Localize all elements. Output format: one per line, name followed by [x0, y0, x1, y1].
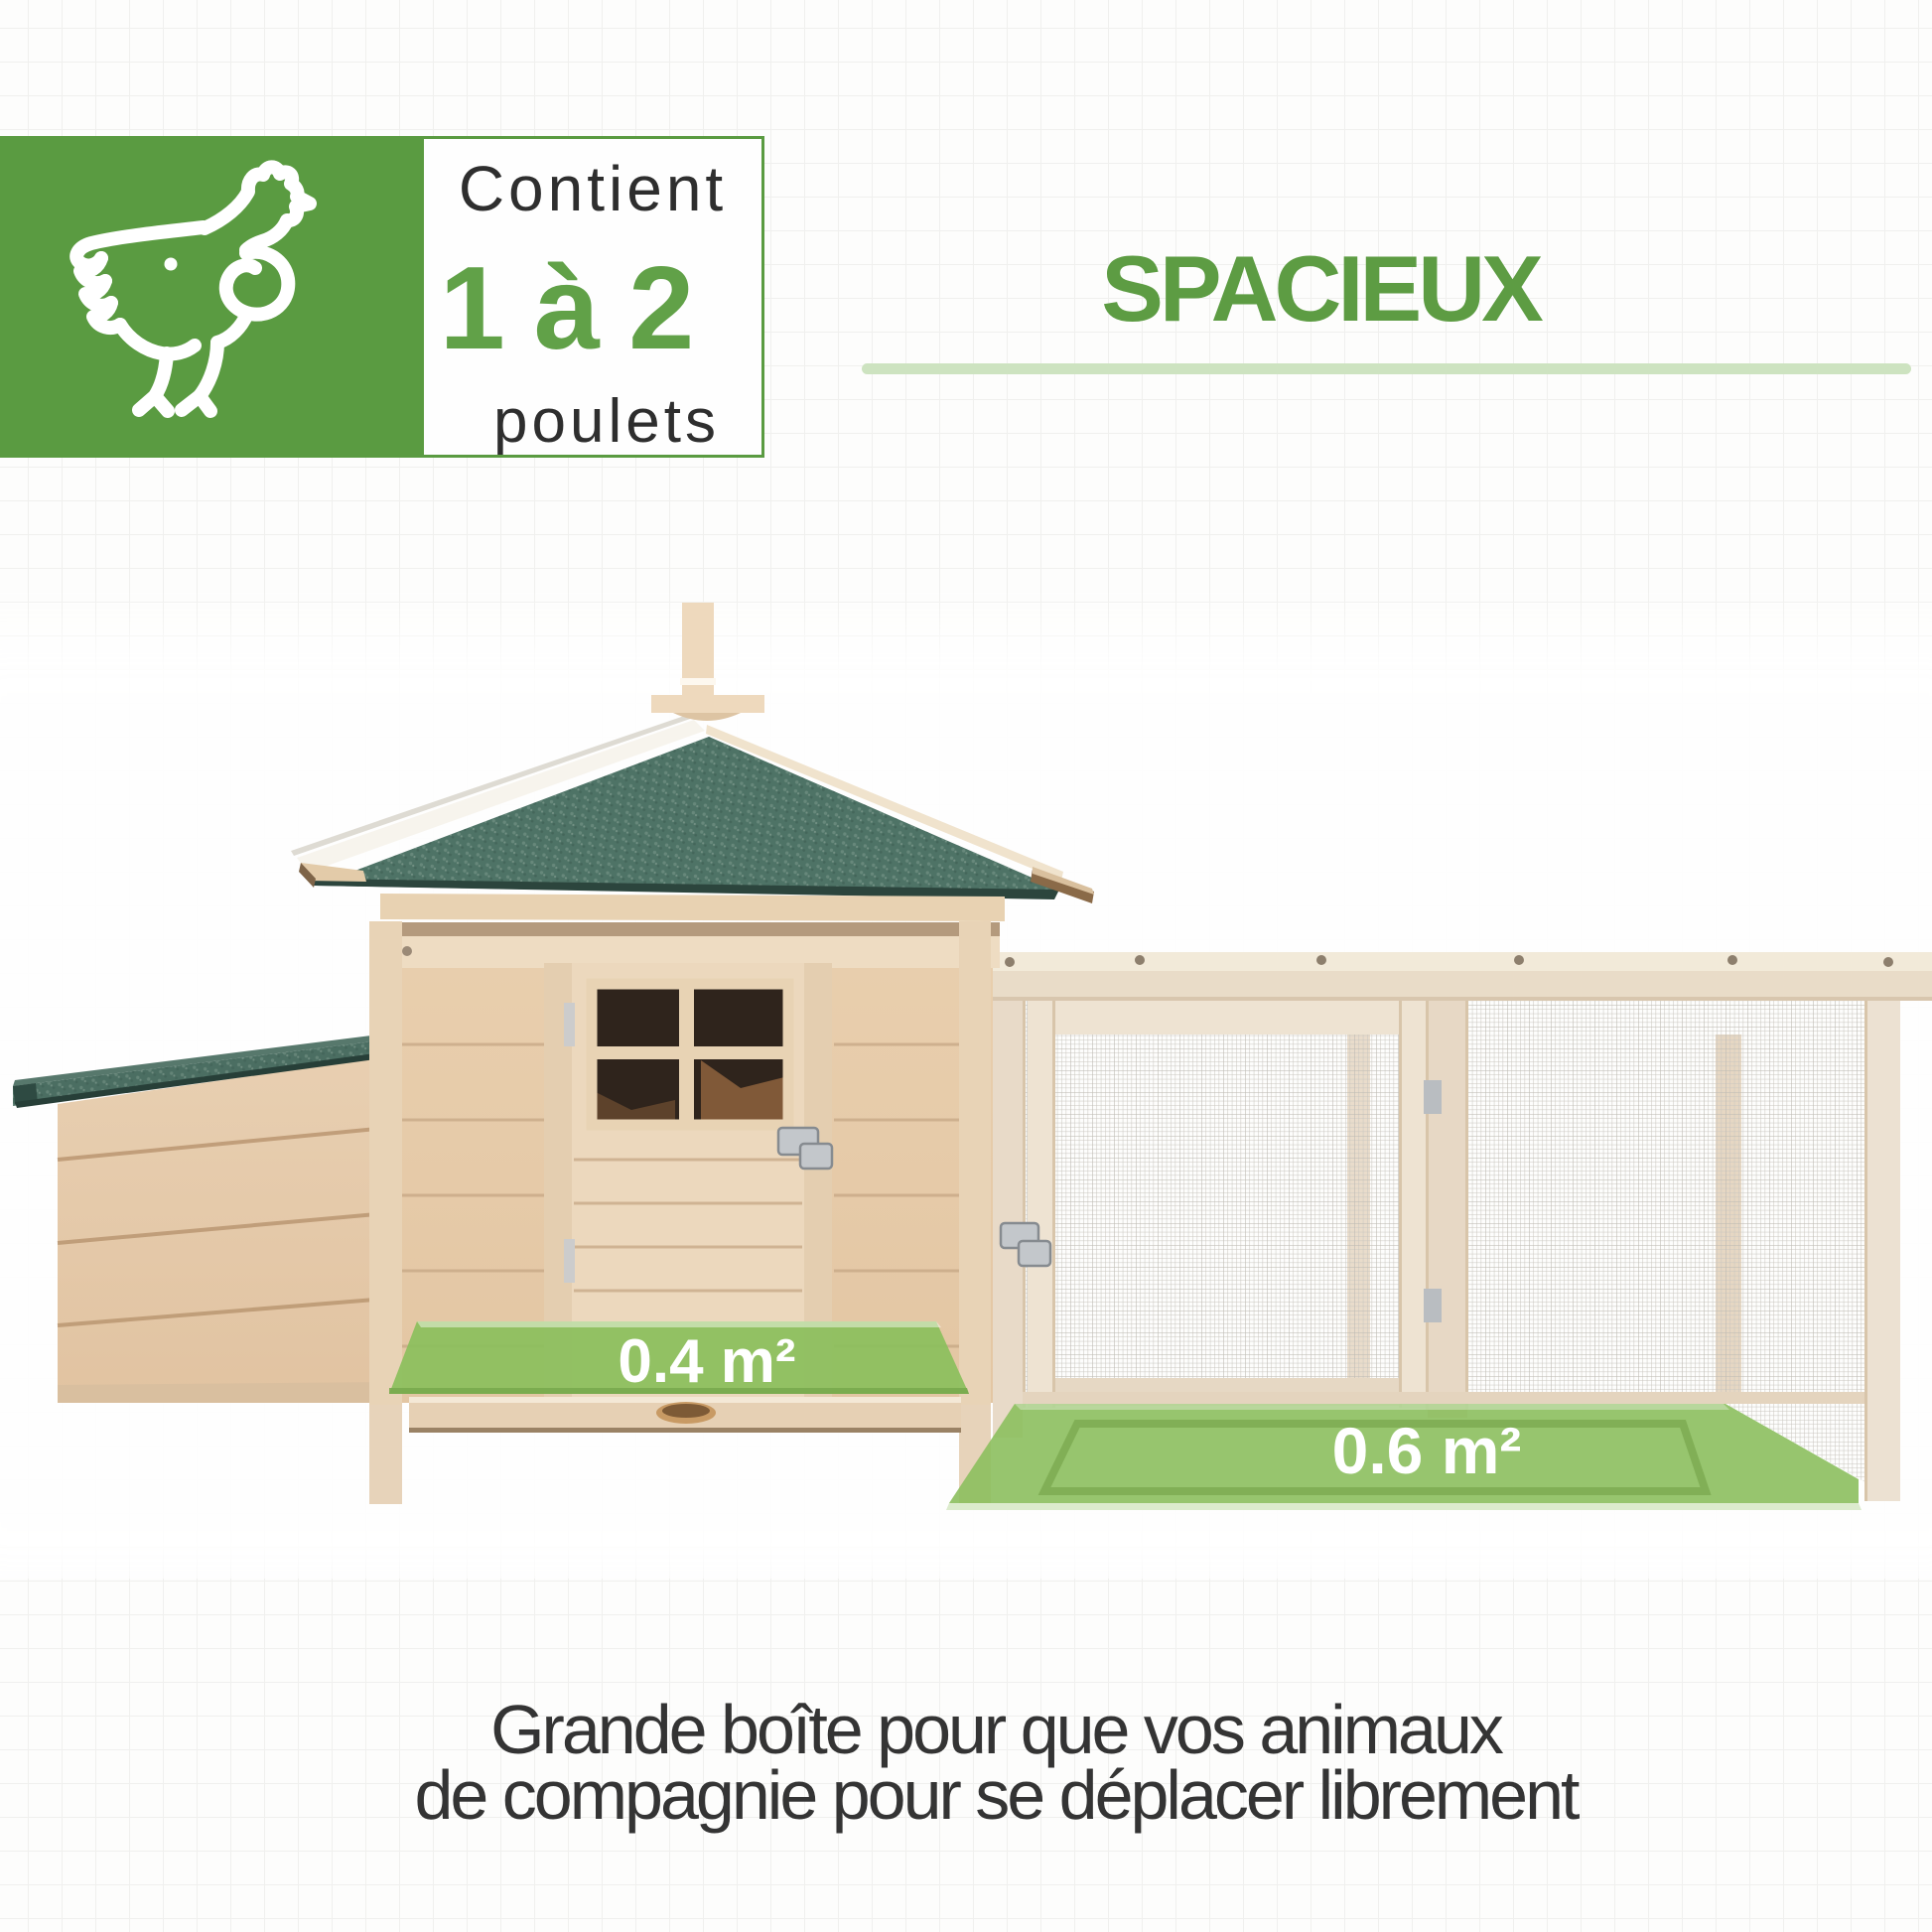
svg-text:0.6 m²: 0.6 m²	[1332, 1414, 1522, 1487]
svg-text:0.4 m²: 0.4 m²	[618, 1327, 795, 1396]
